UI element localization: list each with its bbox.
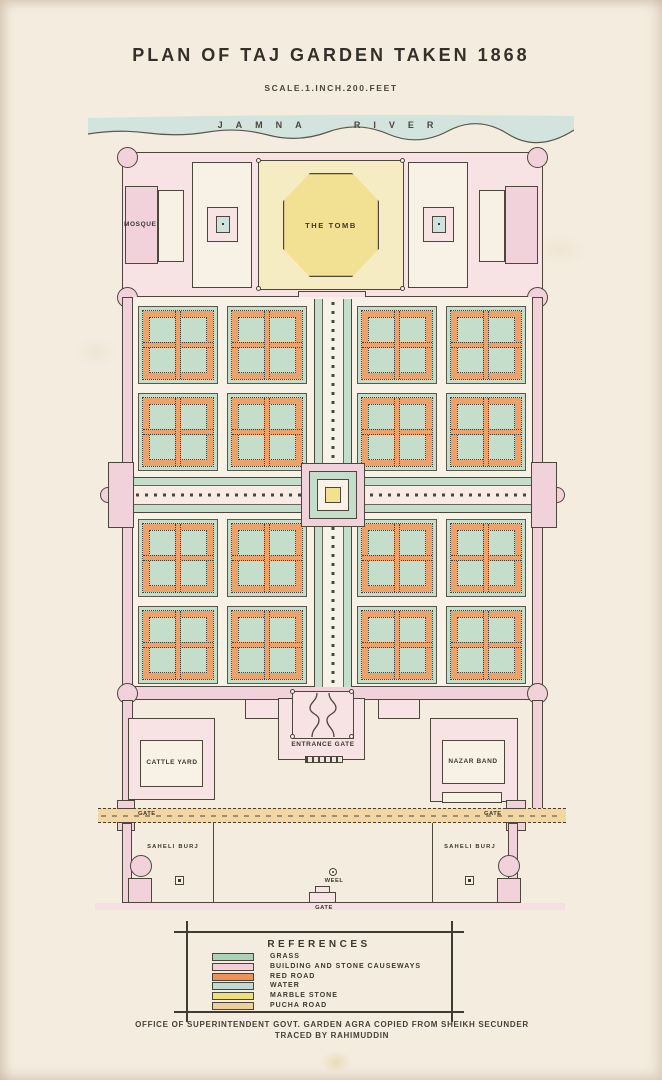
south-gate-label: GATE [315,906,333,912]
pavilion-mark-icon [175,876,184,885]
legend-row: MARBLE STONE [0,992,662,1002]
plot-path-cross [175,611,181,679]
footer-traced-line: TRACED BY RAHIMUDDIN [275,1032,389,1040]
river-label: JAMNA RIVER [218,121,447,130]
court-divider [432,823,433,903]
page-title: PLAN OF TAJ GARDEN TAKEN 1868 [132,46,529,64]
saheli-burj-right-label: SAHELI BURJ [444,845,496,851]
nazar-band-label: NAZAR BAND [448,759,497,766]
legend-row: WATER [0,982,662,992]
cattle-yard-label: CATTLE YARD [146,760,197,767]
gate-passage-icon [293,692,353,738]
garden-plot [446,519,526,597]
garden-plot [446,606,526,684]
plot-path-cross [394,611,400,679]
legend-swatch [212,982,254,990]
nazar-band-step [442,792,502,803]
well-label: WEEL [325,879,344,885]
side-pavilion-right [531,462,557,528]
plot-path-cross [394,524,400,592]
legend-label: GRASS [270,953,300,960]
scanned-plan-page: PLAN OF TAJ GARDEN TAKEN 1868 SCALE.1.IN… [0,0,662,1080]
legend-swatch [212,953,254,961]
saheli-burj-right-tower-icon [498,855,520,877]
terrace-tower-icon [527,147,548,168]
side-pavilion-left [108,462,134,528]
legend-row: GRASS [0,953,662,963]
gate-wing-right [378,699,420,719]
plot-path-cross [175,398,181,466]
plot-path-cross [483,524,489,592]
platform-corner-icon [400,286,405,291]
plot-path-cross [264,398,270,466]
gate-corner-icon [349,734,354,739]
saheli-burj-left-tower-icon [130,855,152,877]
legend-label: RED ROAD [270,973,315,980]
garden-plot [357,306,437,384]
court-divider [213,823,214,903]
garden-plot [446,306,526,384]
garden-plot [138,306,218,384]
legend-label: MARBLE STONE [270,992,338,999]
legend-label: PUCHA ROAD [270,1002,327,1009]
jawab-court [479,190,505,262]
garden-plot [138,393,218,471]
jawab-building [505,186,538,264]
gate-steps-icon [305,756,343,763]
plot-path-cross [483,311,489,379]
legend-row: PUCHA ROAD [0,1002,662,1012]
plot-path-cross [175,524,181,592]
west-gate-label: GATE [138,812,156,818]
platform-corner-icon [256,286,261,291]
saheli-burj-right-base [497,878,521,903]
plot-path-cross [394,311,400,379]
gate-corner-icon [290,689,295,694]
central-pool-tank [325,487,341,503]
entrance-gate-label: ENTRANCE GATE [291,742,354,749]
legend-row: RED ROAD [0,973,662,983]
plot-path-cross [483,611,489,679]
platform-corner-icon [400,158,405,163]
plot-path-cross [264,524,270,592]
entrance-gate [292,691,354,739]
south-gate [309,892,336,903]
legend-row: BUILDING AND STONE CAUSEWAYS [0,963,662,973]
legend-title: REFERENCES [267,940,370,950]
east-gate-label: GATE [484,812,502,818]
garden-plot [138,606,218,684]
pavilion-dot-icon [222,223,224,225]
garden-plot [227,306,307,384]
plot-path-cross [175,311,181,379]
scale-note: SCALE.1.INCH.200.FEET [264,84,397,93]
forecourt-wall-right [532,700,543,810]
garden-plot [138,519,218,597]
garden-plot [357,519,437,597]
garden-plot [357,393,437,471]
garden-plot [446,393,526,471]
west-gate-pier [117,800,135,809]
legend-swatch [212,1002,254,1010]
plot-path-cross [394,398,400,466]
garden-plot [227,393,307,471]
legend-swatch [212,973,254,981]
garden-plot [227,519,307,597]
mosque-label: MOSQUE [124,222,157,229]
gate-corner-icon [349,689,354,694]
east-gate-pier [506,800,526,809]
pavilion-mark-icon [465,876,474,885]
plot-path-cross [483,398,489,466]
tomb-label: THE TOMB [305,222,357,230]
pavilion-dot-icon [438,223,440,225]
saheli-burj-left-base [128,878,152,903]
gate-corner-icon [290,734,295,739]
legend-swatch [212,963,254,971]
footer-office-line: OFFICE OF SUPERINTENDENT GOVT. GARDEN AG… [135,1021,529,1029]
legend-swatch [212,992,254,1000]
legend-frame-line [174,931,464,933]
plot-path-cross [264,611,270,679]
mosque-court [158,190,184,262]
plot-path-cross [264,311,270,379]
south-gate-top [315,886,330,893]
legend-label: WATER [270,982,300,989]
legend-label: BUILDING AND STONE CAUSEWAYS [270,963,421,970]
platform-corner-icon [256,158,261,163]
garden-plot [357,606,437,684]
well-icon [329,868,337,876]
terrace-tower-icon [117,147,138,168]
garden-plot [227,606,307,684]
saheli-burj-left-label: SAHELI BURJ [147,845,199,851]
